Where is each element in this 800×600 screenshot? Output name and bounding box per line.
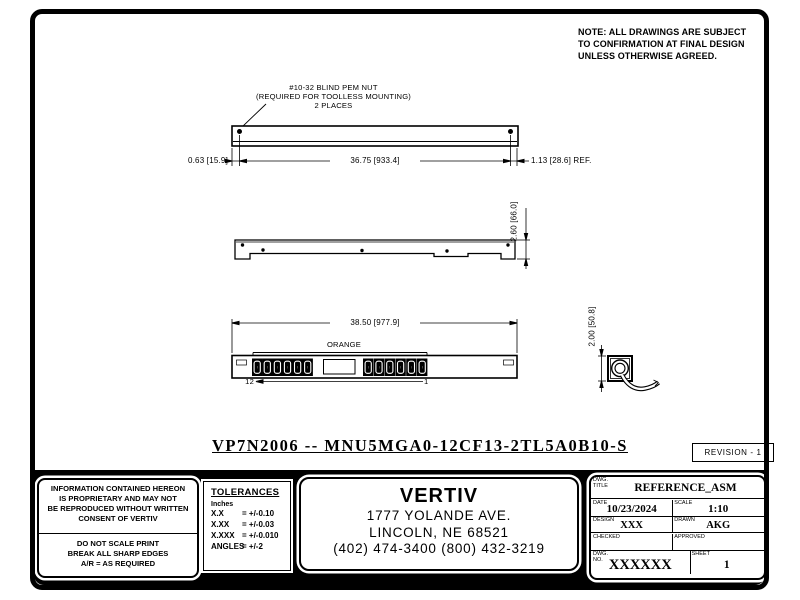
end-view-drawing [598, 345, 659, 392]
title-block-row-title: DWG. TITLE REFERENCE_ASM [591, 477, 764, 499]
shop-notes: DO NOT SCALE PRINT BREAK ALL SHARP EDGES… [39, 539, 197, 569]
title-block-row-date: DATE 10/23/2024 SCALE 1:10 [591, 500, 764, 517]
pem-nut-callout: #10-32 BLIND PEM NUT (REQUIRED FOR TOOLL… [236, 83, 431, 111]
part-number: VP7N2006 -- MNU5MGA0-12CF13-2TL5A0B10-S [180, 436, 660, 456]
front-view-drawing [232, 319, 517, 383]
tolerance-row: X.X= +/-0.10 [211, 508, 288, 519]
label-window [324, 360, 356, 375]
proprietary-line: INFORMATION CONTAINED HEREON [39, 484, 197, 494]
title-block-row-number: DWG. NO. XXXXXX SHEET 1 [591, 551, 764, 574]
tolerance-row: ANGLES= +/-2 [211, 541, 288, 552]
shop-note-line: A/R = AS REQUIRED [39, 559, 197, 569]
pem-nut-left [238, 130, 242, 134]
pdu-side-profile [235, 240, 515, 259]
proprietary-panel: INFORMATION CONTAINED HEREON IS PROPRIET… [37, 478, 199, 578]
outlet-color-label: ORANGE [304, 340, 384, 349]
dimension-text: 38.50 [977.9] [330, 318, 420, 327]
shop-note-line: BREAK ALL SHARP EDGES [39, 549, 197, 559]
design-value: XXX [591, 520, 672, 531]
dimension-text: 2.00 [50.8] [588, 297, 599, 357]
callout-line: #10-32 BLIND PEM NUT [236, 83, 431, 92]
shop-note-line: DO NOT SCALE PRINT [39, 539, 197, 549]
outlet-number-12: 12 [240, 377, 254, 386]
pdu-top-body [232, 126, 518, 146]
title-block-row-checked: CHECKED APPROVED [591, 534, 764, 551]
title-block-row-design: DESIGN XXX DRAWN AKG [591, 517, 764, 533]
title-block-panel: DWG. TITLE REFERENCE_ASM DATE 10/23/2024… [589, 475, 766, 580]
dimension-text: 0.63 [15.9] [183, 156, 228, 165]
tolerances-title: TOLERANCES [211, 487, 288, 498]
proprietary-line: CONSENT OF VERTIV [39, 514, 197, 524]
company-city: LINCOLN, NE 68521 [301, 525, 577, 542]
callout-line: (REQUIRED FOR TOOLLESS MOUNTING) [236, 92, 431, 101]
outlet-icon [396, 359, 405, 376]
dwg-title-label: DWG. TITLE [593, 478, 608, 489]
pem-nut-right [509, 130, 513, 134]
note-line: NOTE: ALL DRAWINGS ARE SUBJECT [578, 26, 746, 38]
company-logo-text: VERTIV [301, 485, 577, 508]
company-address: 1777 YOLANDE AVE. [301, 508, 577, 525]
company-phone: (402) 474-3400 (800) 432-3219 [301, 541, 577, 558]
note-line: TO CONFIRMATION AT FINAL DESIGN [578, 38, 746, 50]
proprietary-line: IS PROPRIETARY AND MAY NOT [39, 494, 197, 504]
outlet-icon [263, 359, 272, 376]
sheet-value: 1 [690, 559, 764, 571]
dimension-text: 2.60 [66.0] [510, 192, 521, 252]
proprietary-line: BE REPRODUCED WITHOUT WRITTEN [39, 504, 197, 514]
panel-divider [39, 533, 197, 534]
tolerance-row: X.XX= +/-0.03 [211, 519, 288, 530]
approved-label: APPROVED [674, 535, 705, 541]
outlet-number-1: 1 [424, 377, 428, 386]
outlet-icon [283, 359, 292, 376]
dwg-title-value: REFERENCE_ASM [607, 482, 764, 494]
confirmation-note: NOTE: ALL DRAWINGS ARE SUBJECT TO CONFIR… [578, 26, 746, 62]
drawn-value: AKG [672, 520, 764, 531]
scale-value: 1:10 [672, 503, 764, 515]
revision-box: REVISION - 1 [692, 443, 774, 462]
outlet-icon [418, 359, 427, 376]
outlet-icon [253, 359, 262, 376]
tolerances-panel: TOLERANCES Inches X.X= +/-0.10 X.XX= +/-… [203, 481, 291, 571]
side-view-drawing [235, 208, 530, 269]
note-line: UNLESS OTHERWISE AGREED. [578, 50, 746, 62]
dimension-text: 1.13 [28.6] REF. [531, 156, 592, 165]
drawing-sheet: NOTE: ALL DRAWINGS ARE SUBJECT TO CONFIR… [0, 0, 800, 600]
date-value: 10/23/2024 [591, 503, 672, 515]
dwg-no-value: XXXXXX [591, 557, 690, 574]
outlet-icon [364, 359, 373, 376]
sheet-label: SHEET [692, 552, 710, 558]
callout-line: 2 PLACES [236, 101, 431, 110]
outlet-icon [303, 359, 312, 376]
outlet-icon [407, 359, 416, 376]
outlet-icon [293, 359, 302, 376]
outlet-icon [385, 359, 394, 376]
tolerance-row: X.XXX= +/-0.010 [211, 530, 288, 541]
dimension-text: 36.75 [933.4] [330, 156, 420, 165]
proprietary-text: INFORMATION CONTAINED HEREON IS PROPRIET… [39, 484, 197, 524]
company-panel: VERTIV 1777 YOLANDE AVE. LINCOLN, NE 685… [299, 477, 579, 571]
tolerances-units: Inches [211, 501, 288, 508]
outlet-icon [273, 359, 282, 376]
outlet-icon [374, 359, 383, 376]
checked-label: CHECKED [593, 535, 620, 541]
